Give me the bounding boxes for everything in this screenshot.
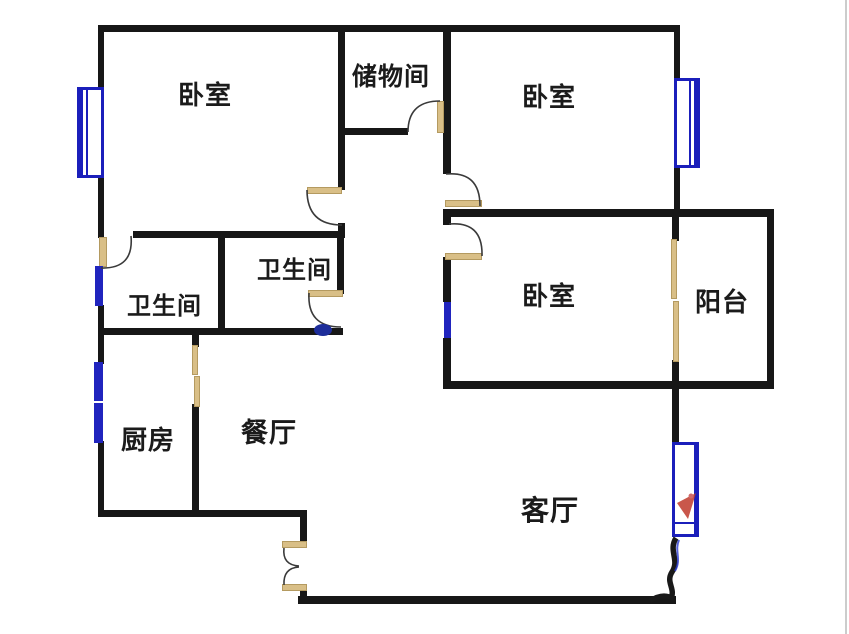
room-label-kitchen: 厨房: [121, 427, 175, 457]
room-label-balcony: 阳台: [695, 289, 749, 319]
door-arc-bedroom-right: [449, 224, 482, 256]
red-artifact-dot: [689, 494, 694, 499]
room-label-bathroom-left: 卫生间: [127, 293, 202, 321]
door-arc-bathroom-left: [101, 236, 131, 268]
room-label-bedroom-top-left: 卧室: [178, 82, 232, 112]
floor-plan: 卧室 储物间 卧室 卫生间 卫生间 卧室 阳台 厨房 餐厅 客厅: [0, 0, 849, 634]
door-arc-bathroom-right: [309, 293, 341, 327]
room-label-bedroom-right: 卧室: [522, 283, 576, 313]
door-arc-bedroom-top-left: [307, 190, 342, 225]
room-label-living: 客厅: [521, 495, 579, 527]
blue-artifact-blob: [314, 324, 332, 336]
image-edge-line: [845, 0, 847, 634]
door-arc-storage: [408, 101, 440, 132]
entry-door-arc-bottom: [284, 567, 299, 585]
room-label-dining: 餐厅: [241, 418, 297, 449]
room-label-bathroom-right: 卫生间: [257, 257, 332, 285]
door-arc-bedroom-top-right: [446, 174, 480, 206]
room-label-bedroom-top-right: 卧室: [522, 84, 576, 114]
entry-door-arc-top: [284, 548, 299, 566]
room-label-storage: 储物间: [352, 63, 430, 92]
